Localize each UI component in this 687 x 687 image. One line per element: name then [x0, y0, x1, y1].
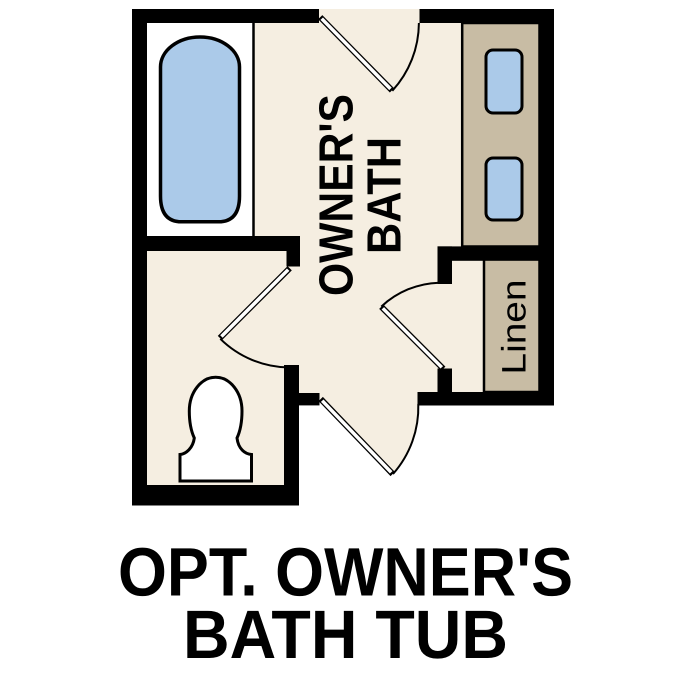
svg-text:Linen: Linen [496, 280, 534, 375]
svg-text:BATH TUB: BATH TUB [183, 596, 508, 673]
svg-text:BATH: BATH [358, 137, 411, 254]
svg-text:OWNER'S: OWNER'S [310, 94, 363, 296]
